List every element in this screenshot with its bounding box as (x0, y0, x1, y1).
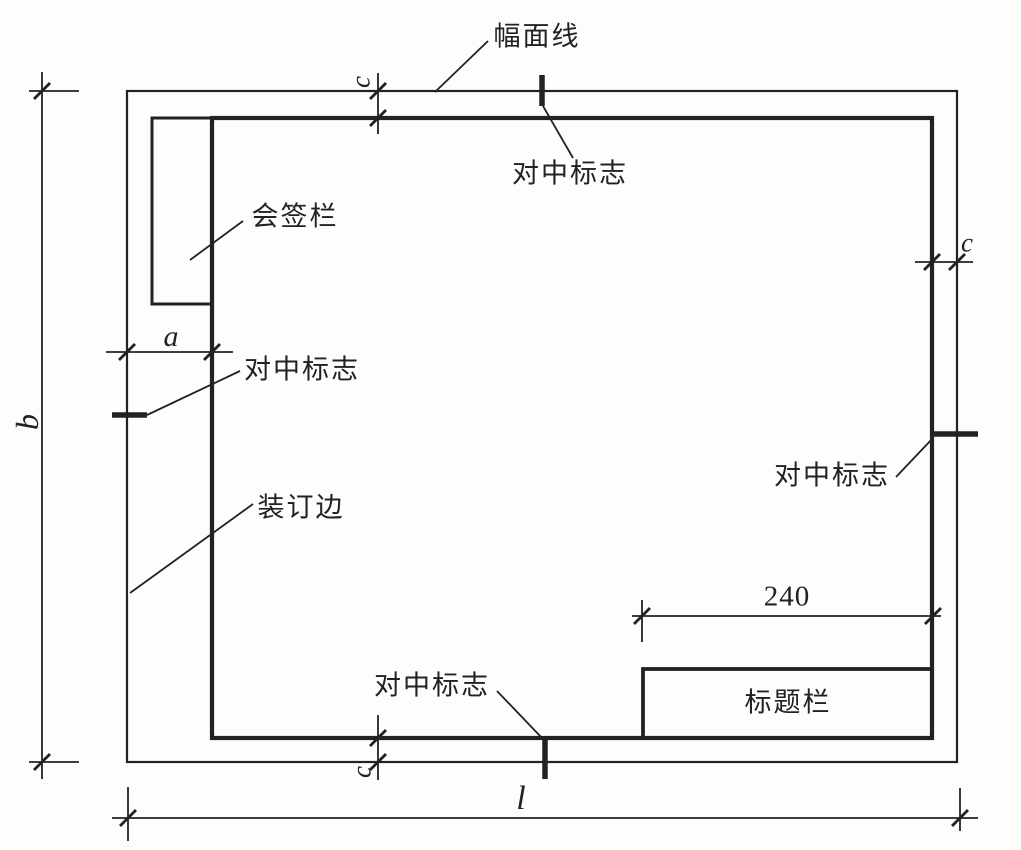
dim-label-l: l (516, 782, 525, 816)
label-centering-mark-left: 对中标志 (244, 357, 360, 384)
label-binding-edge: 装订边 (258, 495, 345, 522)
label-centering-mark-top: 对中标志 (512, 161, 628, 188)
leader-centering-mark-left (147, 371, 240, 415)
label-centering-mark-right: 对中标志 (774, 463, 890, 490)
label-sheet-boundary-line: 幅面线 (494, 24, 581, 51)
sheet-format-diagram: 幅面线 对中标志 会签栏 对中标志 装订边 对中标志 对中标志 标题栏 a b … (0, 0, 1021, 850)
leader-binding-edge (130, 504, 253, 593)
leader-centering-mark-bottom (497, 691, 542, 738)
dim-label-c-top: c (348, 76, 375, 88)
dim-label-c-bottom: c (349, 766, 376, 778)
diagram-canvas (0, 0, 1021, 850)
dimension-l (112, 787, 978, 841)
signature-block-box (152, 118, 212, 304)
label-title-block: 标题栏 (745, 690, 832, 717)
leader-signature-block (190, 221, 243, 260)
dim-label-240: 240 (764, 583, 811, 612)
leader-centering-mark-top (543, 106, 573, 158)
leader-centering-mark-right (896, 438, 933, 477)
sheet-boundary-outer-frame (127, 91, 957, 762)
dim-label-a: a (164, 322, 179, 352)
leader-sheet-boundary-line (435, 41, 488, 92)
dim-label-b: b (11, 414, 43, 430)
label-centering-mark-bottom: 对中标志 (374, 673, 490, 700)
dim-label-c-right: c (961, 230, 973, 257)
label-signature-block: 会签栏 (252, 204, 339, 231)
